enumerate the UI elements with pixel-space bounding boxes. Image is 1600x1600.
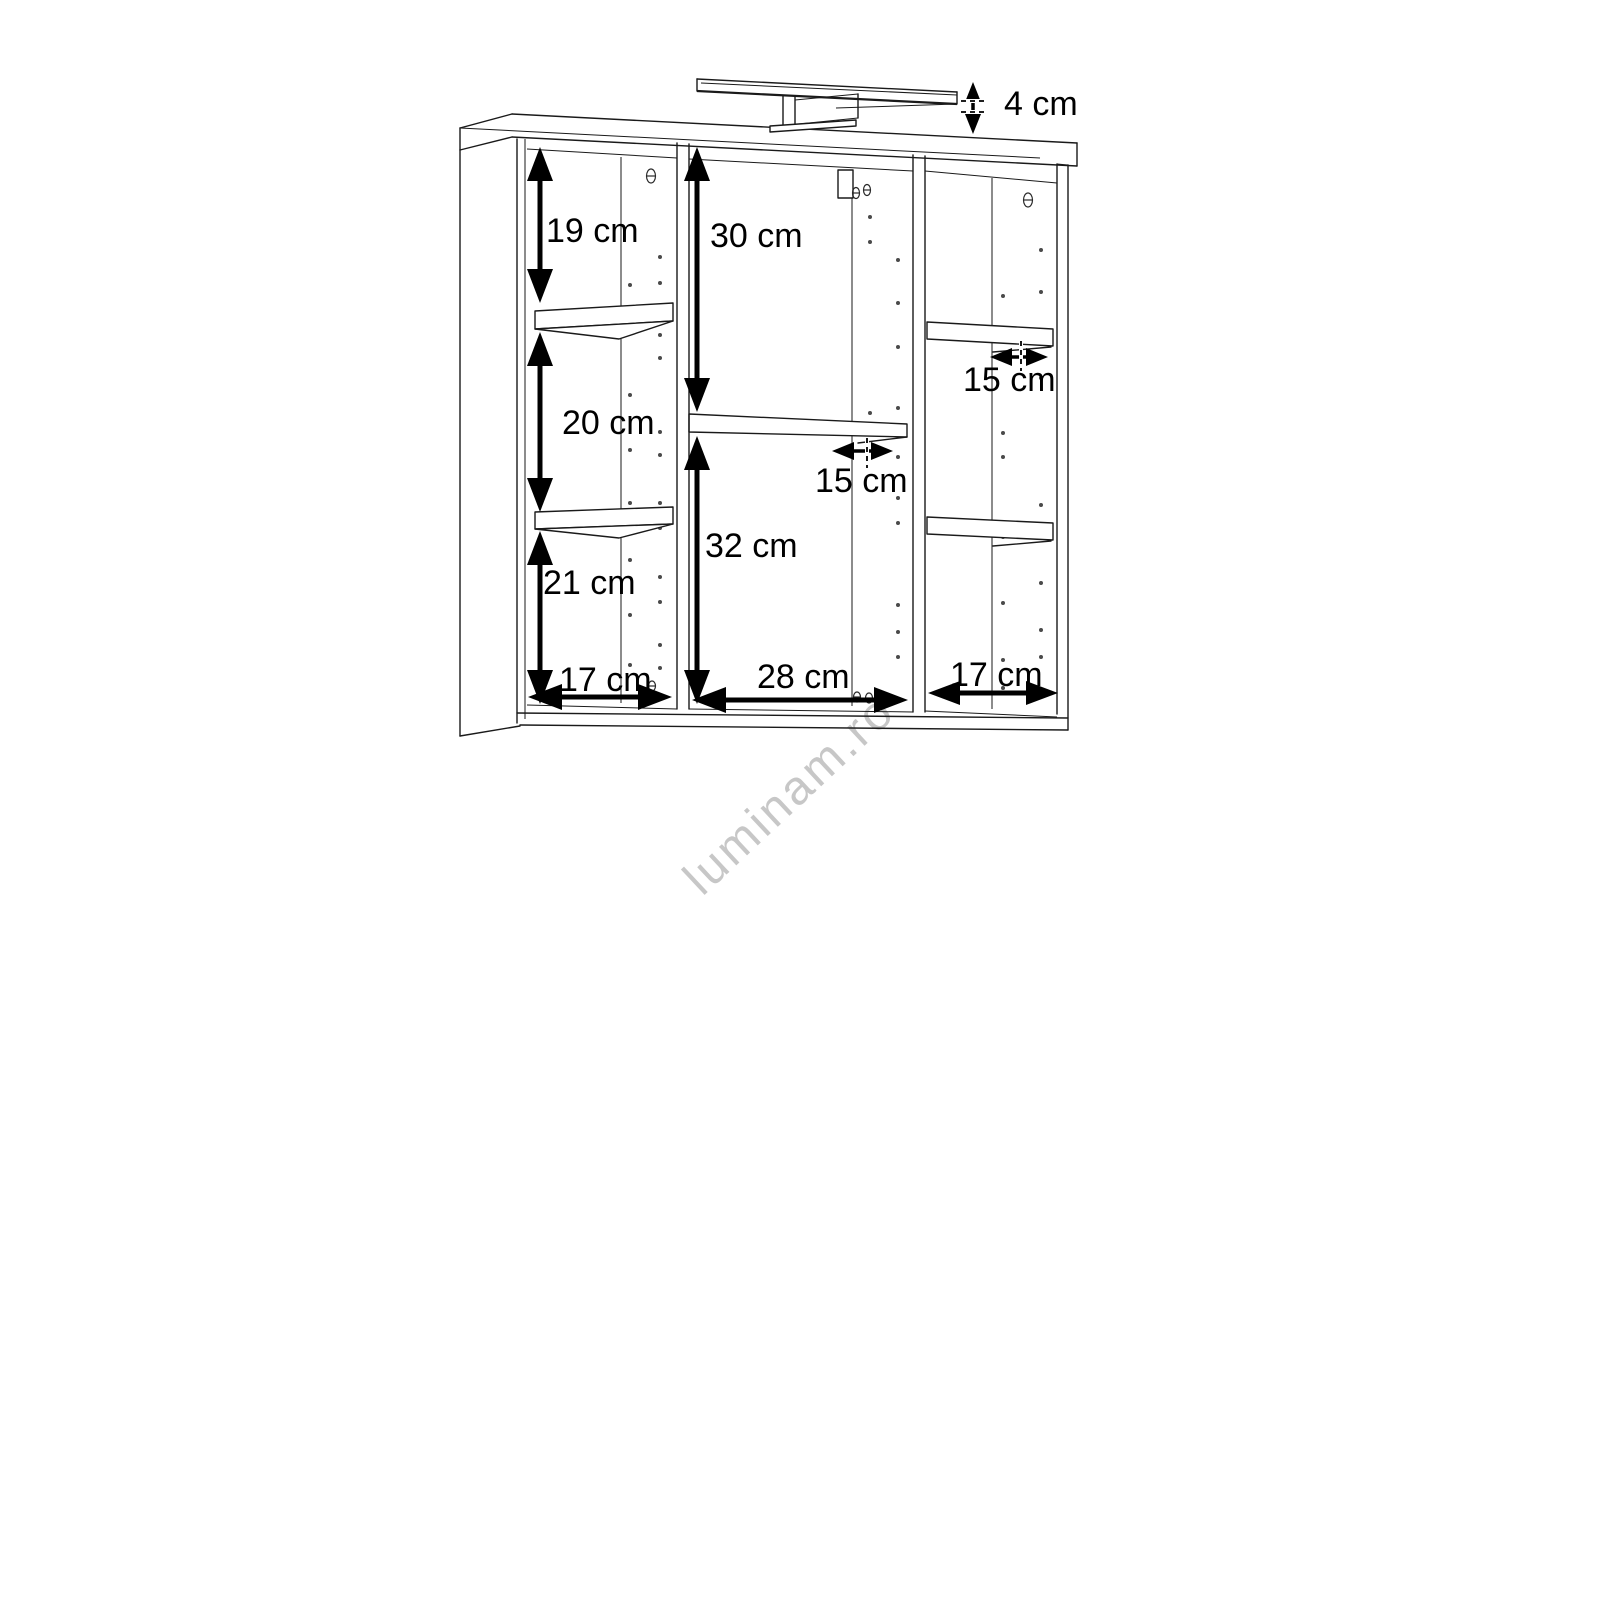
left-side-panel <box>460 139 525 736</box>
right-side-panel <box>1057 164 1068 730</box>
dimension-label-center-bottom: 32 cm <box>705 527 798 565</box>
center-shelf <box>689 414 907 443</box>
bottom-panel <box>517 713 1068 730</box>
dimension-arrow-30cm <box>684 147 710 412</box>
dimension-arrow-4cm <box>961 82 986 134</box>
page: luminam.ro <box>0 0 1600 1600</box>
dimension-label-right-shelf-depth: 15 cm <box>963 361 1056 399</box>
right-upper-shelf <box>927 322 1053 352</box>
left-lower-shelf <box>535 507 673 538</box>
watermark: luminam.ro <box>674 684 906 905</box>
dimension-label-right-width: 17 cm <box>950 656 1043 694</box>
light-fixture <box>697 79 957 132</box>
dimension-label-left-bottom: 21 cm <box>543 564 636 602</box>
left-divider <box>677 143 689 709</box>
shelf-pin-holes <box>628 215 1043 690</box>
left-upper-shelf <box>535 303 673 339</box>
dimension-label-center-width: 28 cm <box>757 658 850 696</box>
cam-lock-icon <box>647 169 656 183</box>
lamp-stem <box>770 94 858 132</box>
dimension-label-left-width: 17 cm <box>559 661 652 699</box>
dimension-arrow-21cm <box>527 531 553 704</box>
lamp-bar <box>697 79 957 108</box>
top-panel <box>460 114 1077 166</box>
dimension-arrow-32cm <box>684 436 710 704</box>
dimension-label-center-top: 30 cm <box>710 217 803 255</box>
dimension-label-light-height: 4 cm <box>1004 85 1078 123</box>
hinge-block <box>838 170 853 198</box>
cam-lock-icon <box>1024 193 1033 207</box>
cam-lock-icon <box>853 188 860 199</box>
right-divider <box>913 155 925 712</box>
dimension-label-center-shelf-depth: 15 cm <box>815 462 908 500</box>
furniture-dimension-diagram: luminam.ro <box>0 0 1600 1600</box>
dimension-arrow-20cm <box>527 332 553 512</box>
dimension-label-left-middle: 20 cm <box>562 404 655 442</box>
dimension-label-left-top: 19 cm <box>546 212 639 250</box>
cam-lock-icon <box>864 185 871 196</box>
right-lower-shelf <box>927 517 1053 546</box>
